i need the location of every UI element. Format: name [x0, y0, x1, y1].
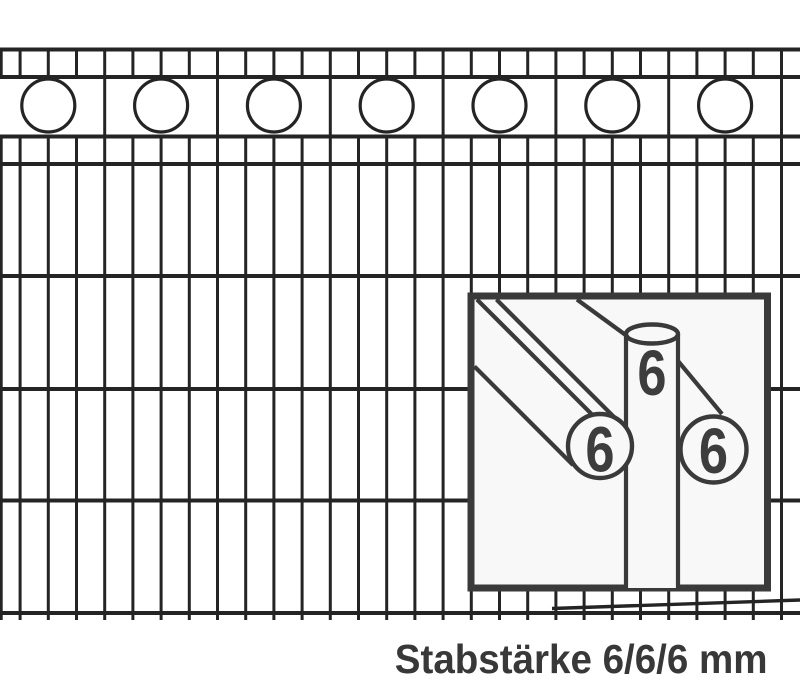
front-rod-diameter-label: 6 — [585, 415, 614, 486]
decorative-ring — [360, 79, 413, 132]
decorative-ring — [247, 79, 300, 132]
decorative-ring — [586, 79, 639, 132]
back-rod-diameter-label: 6 — [699, 416, 728, 487]
fence-drawing: 6 6 6 — [0, 0, 800, 682]
caption: Stabstärke 6/6/6 mm — [395, 639, 768, 680]
decorative-ring — [699, 79, 752, 132]
inset-detail-box: 6 6 6 — [471, 296, 768, 588]
decorative-ring — [22, 79, 75, 132]
decorative-ring — [473, 79, 526, 132]
vertical-rod-diameter-label: 6 — [637, 338, 666, 409]
decorative-ring — [135, 79, 188, 132]
fence-horizontal-rod-back — [552, 600, 800, 609]
fence-product-illustration: 6 6 6 Stabstärke 6/6/6 mm — [0, 0, 800, 682]
